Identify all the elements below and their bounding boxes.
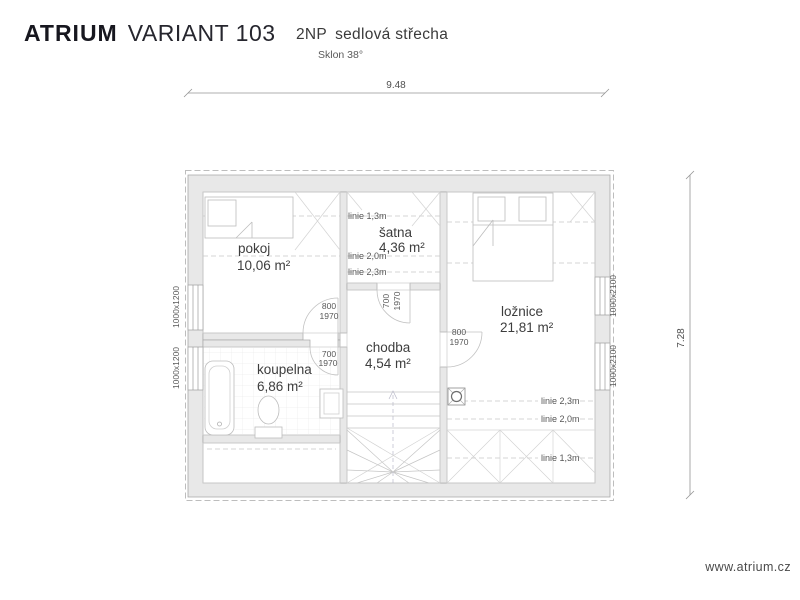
room-area-chodba: 4,54 m² <box>365 356 411 371</box>
room-label-satna: šatna <box>379 225 413 240</box>
bathtub-icon <box>205 361 234 435</box>
floor-plan-drawing: 9.48 7.28 pokoj 10,06 m² šatna 4,36 m² c… <box>0 0 800 600</box>
room-label-pokoj: pokoj <box>238 241 270 256</box>
window-label-left-top: 1000x1200 <box>171 286 181 328</box>
window-label-right-bottom: 1000x2100 <box>608 345 618 387</box>
room-label-chodba: chodba <box>366 340 411 355</box>
website-text: www.atrium.cz <box>705 560 791 574</box>
washbasin-icon <box>320 389 343 418</box>
height-line-satna-20: linie 2,0m <box>348 251 387 261</box>
door-label-satna-width: 700 <box>381 294 391 308</box>
window-left-bottom <box>188 347 203 390</box>
single-bed-icon <box>205 197 293 238</box>
room-label-koupelna: koupelna <box>257 362 312 377</box>
door-label-pokoj-width: 800 <box>322 301 336 311</box>
height-line-satna-13: linie 1,3m <box>348 211 387 221</box>
overall-width-dimension: 9.48 <box>386 80 406 91</box>
window-label-left-bottom: 1000x1200 <box>171 347 181 389</box>
room-area-pokoj: 10,06 m² <box>237 258 291 273</box>
door-label-loznice-height: 1970 <box>450 337 469 347</box>
door-label-pokoj-height: 1970 <box>320 311 339 321</box>
height-line-loznice-23: linie 2,3m <box>541 396 580 406</box>
room-area-loznice: 21,81 m² <box>500 320 554 335</box>
height-line-loznice-13: linie 1,3m <box>541 453 580 463</box>
window-left-top <box>188 285 203 330</box>
door-label-satna-height: 1970 <box>392 291 402 310</box>
room-label-loznice: ložnice <box>501 304 543 319</box>
room-area-koupelna: 6,86 m² <box>257 379 303 394</box>
door-label-koupelna-height: 1970 <box>319 358 338 368</box>
chimney-icon <box>448 388 465 405</box>
door-label-loznice-width: 800 <box>452 327 466 337</box>
overall-height-dimension: 7.28 <box>676 328 687 348</box>
double-bed-icon <box>473 193 553 281</box>
staircase <box>347 391 440 483</box>
floor-plan-page: ATRIUM VARIANT 103 2NPsedlová střecha Sk… <box>0 0 800 600</box>
height-line-satna-23: linie 2,3m <box>348 267 387 277</box>
height-line-loznice-20: linie 2,0m <box>541 414 580 424</box>
window-label-right-top: 1000x2100 <box>608 275 618 317</box>
